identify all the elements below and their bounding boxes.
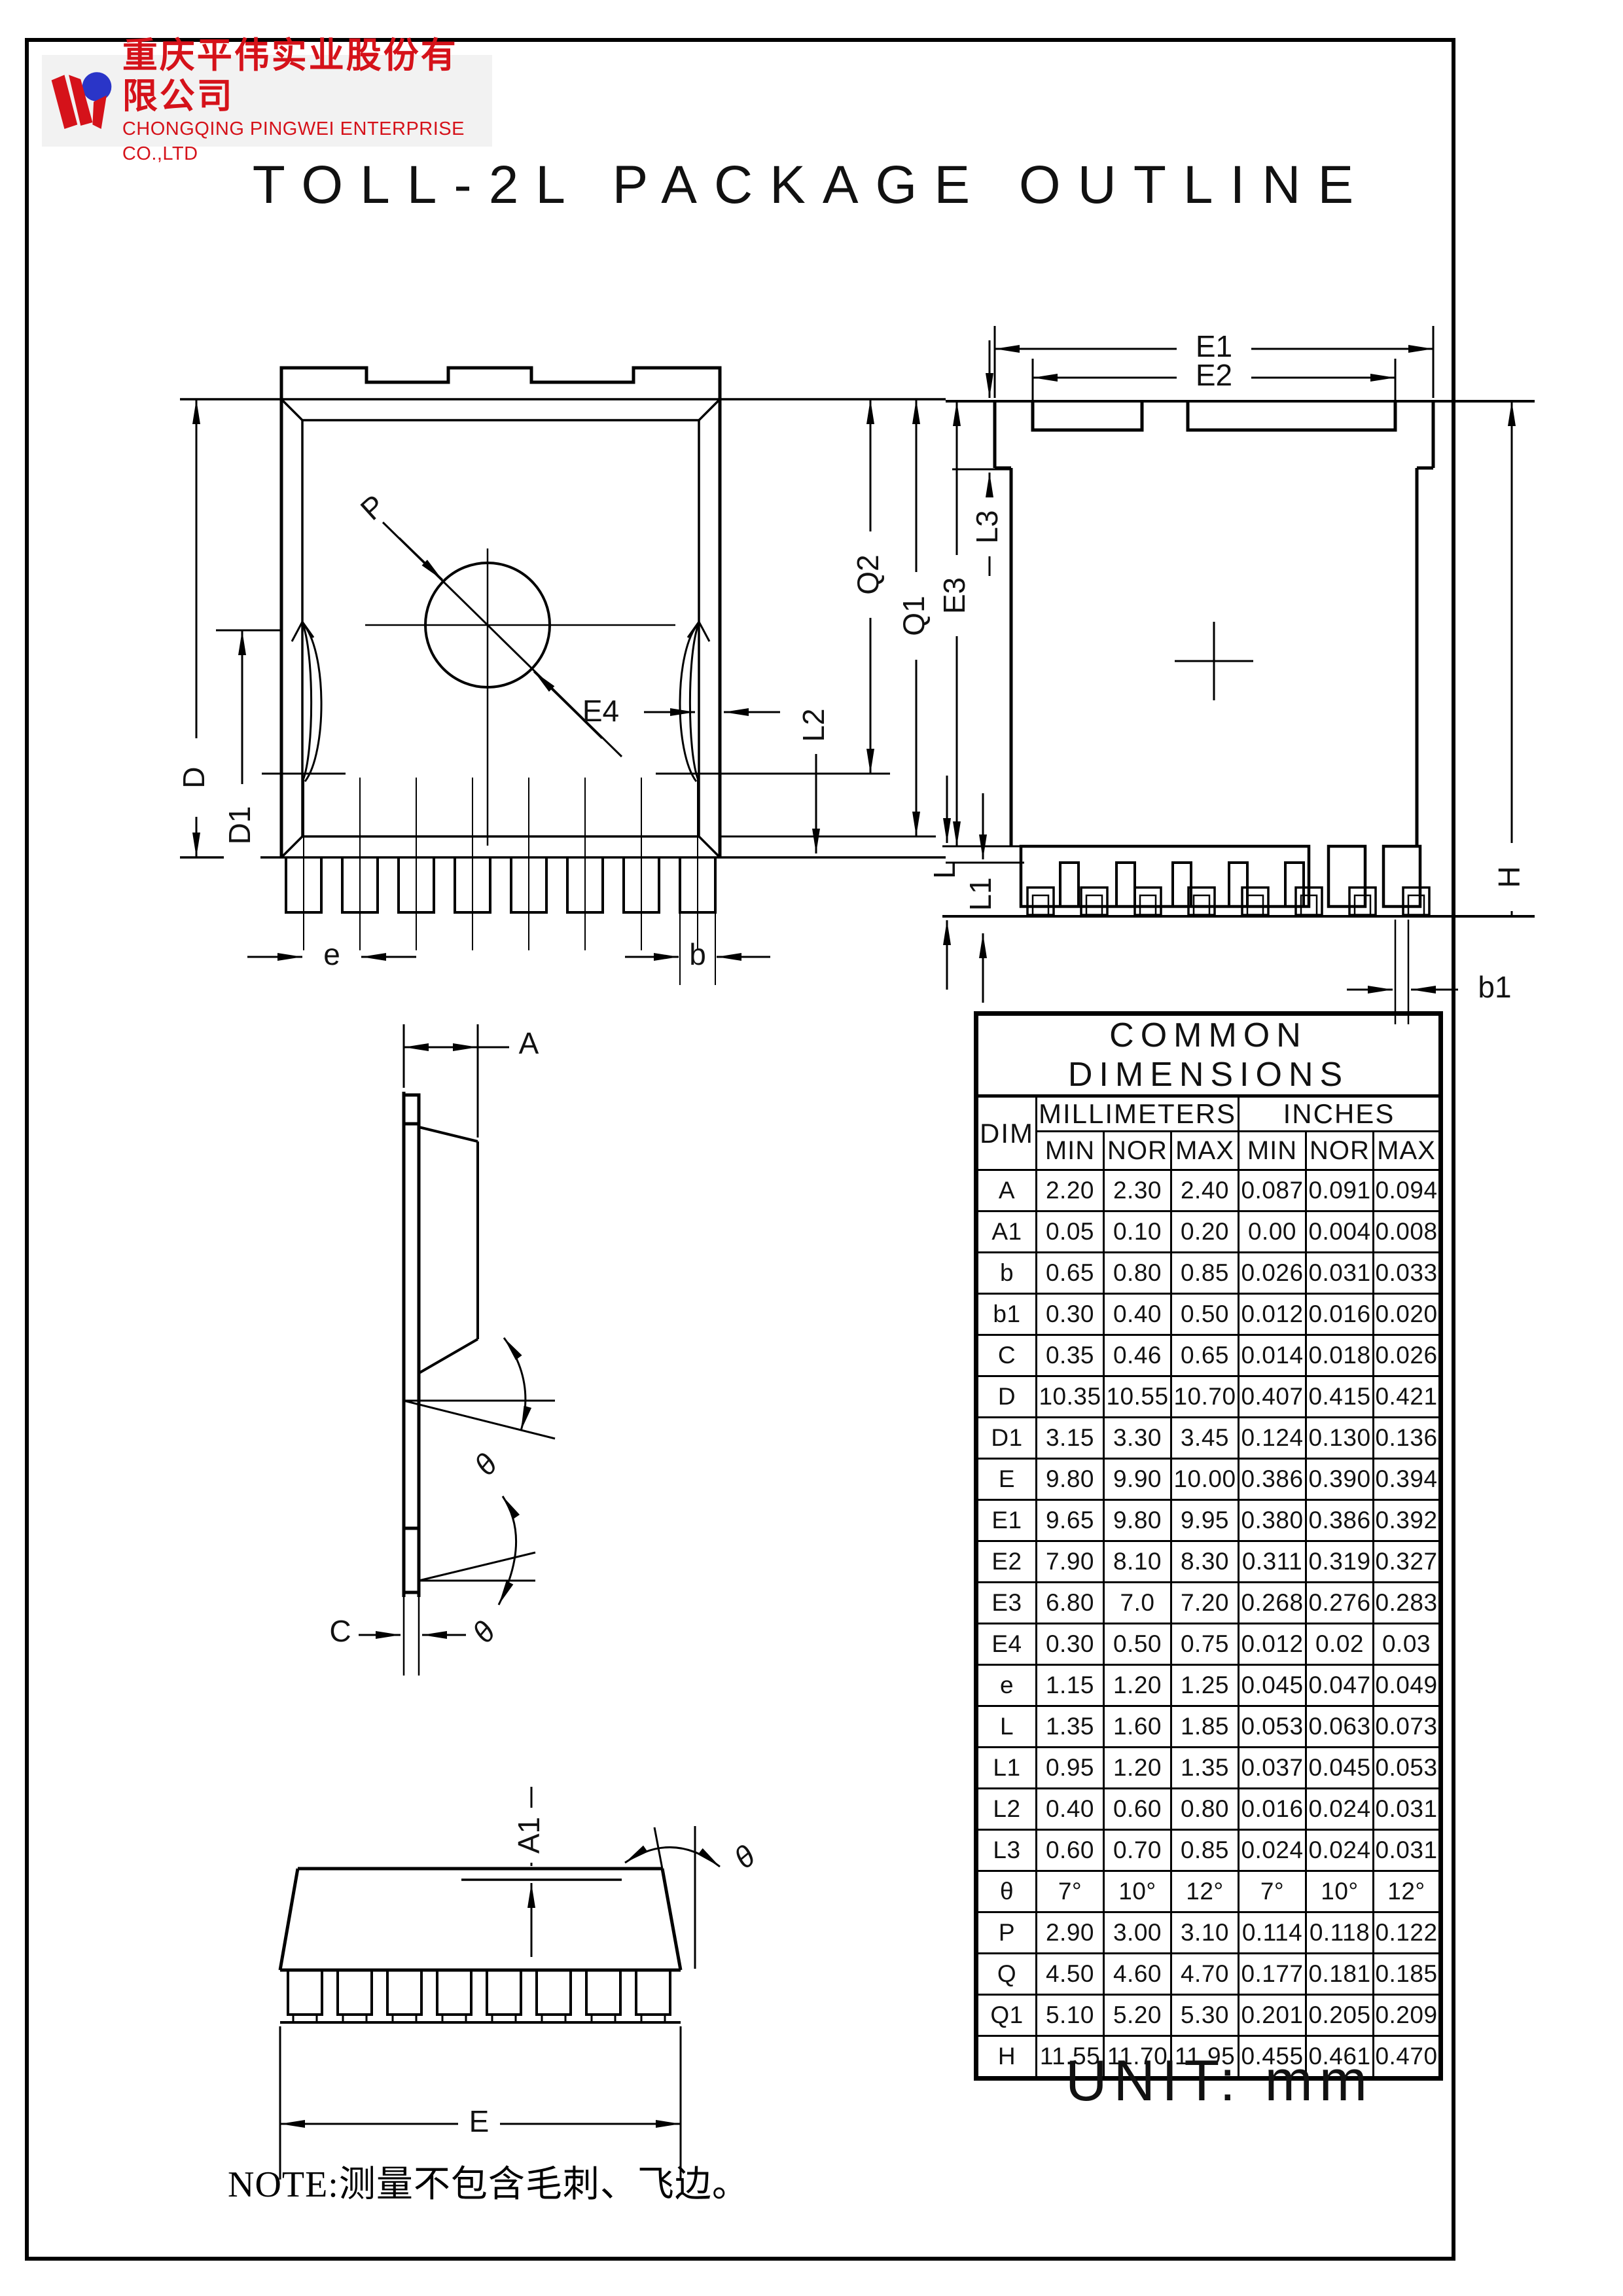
dim-label-p: P <box>354 488 392 527</box>
dim-value-cell: 0.407 <box>1239 1376 1306 1418</box>
dim-value-cell: 0.016 <box>1306 1294 1374 1335</box>
dim-value-cell: 0.70 <box>1104 1830 1171 1871</box>
dim-value-cell: 10.55 <box>1104 1376 1171 1418</box>
dim-value-cell: 0.008 <box>1374 1211 1441 1253</box>
dim-symbol-cell: H <box>976 2036 1037 2079</box>
dim-value-cell: 0.00 <box>1239 1211 1306 1253</box>
dim-value-cell: 0.124 <box>1239 1418 1306 1459</box>
dim-label-e2: E2 <box>1196 358 1232 392</box>
center-cross-mark <box>1175 622 1253 700</box>
side-view-drawing: A θ θ C <box>329 1024 555 1676</box>
dim-value-cell: 2.20 <box>1037 1170 1104 1211</box>
dim-value-cell: 0.031 <box>1374 1830 1441 1871</box>
dim-value-cell: 1.85 <box>1171 1706 1239 1748</box>
dim-label-l1: L1 <box>963 877 997 910</box>
dim-value-cell: 0.60 <box>1104 1789 1171 1830</box>
dim-value-cell: 5.10 <box>1037 1995 1104 2036</box>
dim-value-cell: 3.15 <box>1037 1418 1104 1459</box>
dim-value-cell: 7° <box>1037 1871 1104 1912</box>
dim-value-cell: 3.30 <box>1104 1418 1171 1459</box>
dim-symbol-cell: C <box>976 1335 1037 1376</box>
dim-label-l2: L2 <box>796 708 830 742</box>
dim-value-cell: 0.185 <box>1374 1954 1441 1995</box>
dim-label-e3: E3 <box>937 577 971 614</box>
dim-value-cell: 0.35 <box>1037 1335 1104 1376</box>
table-row: P2.903.003.100.1140.1180.122 <box>976 1912 1441 1954</box>
dim-value-cell: 0.012 <box>1239 1294 1306 1335</box>
column-header-min-in: MIN <box>1239 1132 1306 1170</box>
dim-value-cell: 0.268 <box>1239 1583 1306 1624</box>
table-row: θ7°10°12°7°10°12° <box>976 1871 1441 1912</box>
side-view-taper-lines <box>419 1127 478 1373</box>
dim-value-cell: 0.026 <box>1374 1335 1441 1376</box>
dim-symbol-cell: L2 <box>976 1789 1037 1830</box>
dim-value-cell: 0.421 <box>1374 1376 1441 1418</box>
dim-value-cell: 0.60 <box>1037 1830 1104 1871</box>
dim-label-a1: A1 <box>512 1817 546 1854</box>
table-row: L10.951.201.350.0370.0450.053 <box>976 1748 1441 1789</box>
dim-value-cell: 0.392 <box>1374 1500 1441 1541</box>
p-arrow-upper <box>399 538 442 580</box>
dim-symbol-cell: b <box>976 1253 1037 1294</box>
dim-value-cell: 8.30 <box>1171 1541 1239 1583</box>
dim-value-cell: 0.073 <box>1374 1706 1441 1748</box>
dim-value-cell: 0.045 <box>1239 1665 1306 1706</box>
dim-value-cell: 9.90 <box>1104 1459 1171 1500</box>
dim-value-cell: 0.024 <box>1306 1830 1374 1871</box>
dim-value-cell: 1.15 <box>1037 1665 1104 1706</box>
dim-value-cell: 9.65 <box>1037 1500 1104 1541</box>
dim-value-cell: 0.047 <box>1306 1665 1374 1706</box>
top-view-inner-outline <box>180 399 946 857</box>
dim-value-cell: 0.470 <box>1374 2036 1441 2079</box>
dim-value-cell: 0.85 <box>1171 1253 1239 1294</box>
dim-symbol-cell: E <box>976 1459 1037 1500</box>
dim-value-cell: 0.80 <box>1104 1253 1171 1294</box>
dim-value-cell: 0.012 <box>1239 1624 1306 1665</box>
dim-value-cell: 0.049 <box>1374 1665 1441 1706</box>
dim-symbol-cell: A1 <box>976 1211 1037 1253</box>
dim-value-cell: 4.50 <box>1037 1954 1104 1995</box>
dim-value-cell: 7.0 <box>1104 1583 1171 1624</box>
dim-value-cell: 0.46 <box>1104 1335 1171 1376</box>
dim-value-cell: 0.05 <box>1037 1211 1104 1253</box>
group-header-inches: INCHES <box>1239 1096 1441 1132</box>
dim-value-cell: 0.03 <box>1374 1624 1441 1665</box>
dim-value-cell: 7.20 <box>1171 1583 1239 1624</box>
dim-label-b1: b1 <box>1478 970 1511 1004</box>
dim-value-cell: 0.024 <box>1306 1789 1374 1830</box>
front-view-body-outline <box>280 1869 681 1970</box>
table-row: Q4.504.604.700.1770.1810.185 <box>976 1954 1441 1995</box>
common-dimensions-table: COMMON DIMENSIONS DIM MILLIMETERS INCHES… <box>974 1011 1443 2081</box>
dim-value-cell: 0.65 <box>1037 1253 1104 1294</box>
dim-value-cell: 0.018 <box>1306 1335 1374 1376</box>
dim-value-cell: 0.033 <box>1374 1253 1441 1294</box>
dim-label-theta-upper: θ <box>467 1447 504 1482</box>
table-row: b10.300.400.500.0120.0160.020 <box>976 1294 1441 1335</box>
dim-value-cell: 7.90 <box>1037 1541 1104 1583</box>
theta-lower-construction <box>419 1552 535 1581</box>
dim-value-cell: 9.80 <box>1037 1459 1104 1500</box>
dim-symbol-cell: L3 <box>976 1830 1037 1871</box>
dim-value-cell: 1.35 <box>1171 1748 1239 1789</box>
dim-value-cell: 0.319 <box>1306 1541 1374 1583</box>
table-row: E19.659.809.950.3800.3860.392 <box>976 1500 1441 1541</box>
b1-extension-lines <box>1395 920 1408 1024</box>
unit-label: UNIT: mm <box>1065 2047 1374 2114</box>
dim-value-cell: 5.20 <box>1104 1995 1171 2036</box>
table-row: L20.400.600.800.0160.0240.031 <box>976 1789 1441 1830</box>
dim-value-cell: 0.136 <box>1374 1418 1441 1459</box>
top-view-drawing: P D D1 Q2 Q1 E4 L2 <box>177 368 946 985</box>
theta-arc <box>625 1847 720 1867</box>
dim-value-cell: 0.50 <box>1171 1294 1239 1335</box>
table-title: COMMON DIMENSIONS <box>976 1014 1441 1096</box>
group-header-millimeters: MILLIMETERS <box>1037 1096 1239 1132</box>
dim-value-cell: 0.380 <box>1239 1500 1306 1541</box>
dim-value-cell: 10.00 <box>1171 1459 1239 1500</box>
gate-pin-outline <box>1329 846 1365 906</box>
column-header-max-in: MAX <box>1374 1132 1441 1170</box>
table-row: L1.351.601.850.0530.0630.073 <box>976 1706 1441 1748</box>
dim-value-cell: 3.10 <box>1171 1912 1239 1954</box>
dim-value-cell: 0.053 <box>1374 1748 1441 1789</box>
dim-value-cell: 10.35 <box>1037 1376 1104 1418</box>
dim-value-cell: 0.205 <box>1306 1995 1374 2036</box>
table-row: e1.151.201.250.0450.0470.049 <box>976 1665 1441 1706</box>
dim-value-cell: 0.016 <box>1239 1789 1306 1830</box>
table-row: Q15.105.205.300.2010.2050.209 <box>976 1995 1441 2036</box>
dim-value-cell: 0.122 <box>1374 1912 1441 1954</box>
dim-value-cell: 0.177 <box>1239 1954 1306 1995</box>
dim-value-cell: 4.60 <box>1104 1954 1171 1995</box>
dim-symbol-cell: Q1 <box>976 1995 1037 2036</box>
dim-value-cell: 0.415 <box>1306 1376 1374 1418</box>
column-header-dim: DIM <box>976 1096 1037 1170</box>
dim-value-cell: 2.40 <box>1171 1170 1239 1211</box>
dim-label-b: b <box>689 937 706 971</box>
dim-value-cell: 0.114 <box>1239 1912 1306 1954</box>
table-row: D13.153.303.450.1240.1300.136 <box>976 1418 1441 1459</box>
dim-value-cell: 0.65 <box>1171 1335 1239 1376</box>
top-view-body-outline <box>281 368 720 857</box>
dim-value-cell: 0.30 <box>1037 1294 1104 1335</box>
dim-label-d: D <box>177 766 211 788</box>
table-row: D10.3510.5510.700.4070.4150.421 <box>976 1376 1441 1418</box>
dim-value-cell: 0.087 <box>1239 1170 1306 1211</box>
table-row: E40.300.500.750.0120.020.03 <box>976 1624 1441 1665</box>
dim-label-d1: D1 <box>223 806 257 845</box>
dim-label-q1: Q1 <box>897 596 931 636</box>
dim-value-cell: 10° <box>1104 1871 1171 1912</box>
column-header-min-mm: MIN <box>1037 1132 1104 1170</box>
dim-value-cell: 0.201 <box>1239 1995 1306 2036</box>
exposed-pad-outline <box>1021 846 1309 906</box>
table-row: A10.050.100.200.000.0040.008 <box>976 1211 1441 1253</box>
dim-value-cell: 12° <box>1374 1871 1441 1912</box>
dim-value-cell: 0.031 <box>1374 1789 1441 1830</box>
dim-value-cell: 0.02 <box>1306 1624 1374 1665</box>
a-extension-lines <box>404 1024 478 1138</box>
dim-value-cell: 0.386 <box>1239 1459 1306 1500</box>
dim-value-cell: 1.35 <box>1037 1706 1104 1748</box>
dim-label-l: L <box>927 862 961 879</box>
dim-symbol-cell: Q <box>976 1954 1037 1995</box>
bottom-view-drawing: E1 E2 <box>927 326 1535 1024</box>
dim-value-cell: 0.053 <box>1239 1706 1306 1748</box>
dim-value-cell: 0.031 <box>1306 1253 1374 1294</box>
dim-value-cell: 0.026 <box>1239 1253 1306 1294</box>
top-view-leads <box>286 857 715 912</box>
dim-label-e4: E4 <box>582 694 619 728</box>
dim-value-cell: 0.209 <box>1374 1995 1441 2036</box>
front-view-leads <box>288 1970 670 2015</box>
dim-value-cell: 3.45 <box>1171 1418 1239 1459</box>
dim-value-cell: 3.00 <box>1104 1912 1171 1954</box>
dim-value-cell: 0.094 <box>1374 1170 1441 1211</box>
source-pin-outline <box>1383 846 1420 906</box>
side-view-body-outline <box>404 1092 419 1597</box>
dim-value-cell: 0.386 <box>1306 1500 1374 1541</box>
dim-label-theta-lower: θ <box>465 1615 502 1649</box>
dim-value-cell: 0.091 <box>1306 1170 1374 1211</box>
dim-value-cell: 0.95 <box>1037 1748 1104 1789</box>
dim-value-cell: 1.20 <box>1104 1665 1171 1706</box>
column-header-nor-mm: NOR <box>1104 1132 1171 1170</box>
dim-value-cell: 2.30 <box>1104 1170 1171 1211</box>
dim-value-cell: 10° <box>1306 1871 1374 1912</box>
dim-value-cell: 0.40 <box>1037 1789 1104 1830</box>
dim-symbol-cell: D <box>976 1376 1037 1418</box>
c-extension-lines <box>404 1597 419 1676</box>
dim-label-h: H <box>1492 866 1526 888</box>
dim-label-c: C <box>329 1614 351 1648</box>
dim-value-cell: 6.80 <box>1037 1583 1104 1624</box>
dim-value-cell: 8.10 <box>1104 1541 1171 1583</box>
dim-symbol-cell: e <box>976 1665 1037 1706</box>
dim-value-cell: 0.020 <box>1374 1294 1441 1335</box>
dim-value-cell: 0.276 <box>1306 1583 1374 1624</box>
dim-value-cell: 9.95 <box>1171 1500 1239 1541</box>
table-row: E27.908.108.300.3110.3190.327 <box>976 1541 1441 1583</box>
dim-value-cell: 0.50 <box>1104 1624 1171 1665</box>
dim-value-cell: 10.70 <box>1171 1376 1239 1418</box>
dim-symbol-cell: E4 <box>976 1624 1037 1665</box>
dim-value-cell: 1.25 <box>1171 1665 1239 1706</box>
dim-symbol-cell: P <box>976 1912 1037 1954</box>
dim-value-cell: 0.037 <box>1239 1748 1306 1789</box>
theta-upper-construction <box>404 1401 555 1439</box>
dim-value-cell: 9.80 <box>1104 1500 1171 1541</box>
dim-symbol-cell: A <box>976 1170 1037 1211</box>
dim-value-cell: 0.311 <box>1239 1541 1306 1583</box>
dim-label-theta: θ <box>727 1839 762 1875</box>
dim-value-cell: 2.90 <box>1037 1912 1104 1954</box>
dim-symbol-cell: θ <box>976 1871 1037 1912</box>
dim-value-cell: 0.063 <box>1306 1706 1374 1748</box>
dim-value-cell: 0.004 <box>1306 1211 1374 1253</box>
table-row: b0.650.800.850.0260.0310.033 <box>976 1253 1441 1294</box>
dim-value-cell: 0.181 <box>1306 1954 1374 1995</box>
dim-symbol-cell: E1 <box>976 1500 1037 1541</box>
table-row: A2.202.302.400.0870.0910.094 <box>976 1170 1441 1211</box>
dim-value-cell: 12° <box>1171 1871 1239 1912</box>
dim-value-cell: 0.283 <box>1374 1583 1441 1624</box>
table-row: L30.600.700.850.0240.0240.031 <box>976 1830 1441 1871</box>
dim-symbol-cell: L <box>976 1706 1037 1748</box>
dim-label-a: A <box>519 1026 539 1060</box>
dim-value-cell: 0.85 <box>1171 1830 1239 1871</box>
dim-symbol-cell: D1 <box>976 1418 1037 1459</box>
dim-value-cell: 0.130 <box>1306 1418 1374 1459</box>
theta-upper-arc <box>504 1338 526 1431</box>
front-view-drawing: A1 θ E <box>280 1787 762 2179</box>
note-text: NOTE:测量不包含毛刺、飞边。 <box>228 2155 749 2208</box>
dim-label-e: e <box>323 937 340 971</box>
top-view-lead-centerlines <box>304 778 698 950</box>
column-header-max-mm: MAX <box>1171 1132 1239 1170</box>
dim-value-cell: 0.394 <box>1374 1459 1441 1500</box>
theta-lower-arc <box>499 1496 516 1605</box>
dim-symbol-cell: b1 <box>976 1294 1037 1335</box>
dim-value-cell: 0.40 <box>1104 1294 1171 1335</box>
dim-label-e-width: E <box>469 2104 490 2138</box>
dim-value-cell: 1.20 <box>1104 1748 1171 1789</box>
dim-value-cell: 0.118 <box>1306 1912 1374 1954</box>
dim-value-cell: 5.30 <box>1171 1995 1239 2036</box>
dim-symbol-cell: E2 <box>976 1541 1037 1583</box>
dim-label-q2: Q2 <box>851 554 885 594</box>
dim-value-cell: 0.10 <box>1104 1211 1171 1253</box>
dim-value-cell: 0.390 <box>1306 1459 1374 1500</box>
table-row: E36.807.07.200.2680.2760.283 <box>976 1583 1441 1624</box>
table-body: A2.202.302.400.0870.0910.094A10.050.100.… <box>976 1170 1441 2079</box>
column-header-nor-in: NOR <box>1306 1132 1374 1170</box>
dim-value-cell: 0.014 <box>1239 1335 1306 1376</box>
dim-symbol-cell: L1 <box>976 1748 1037 1789</box>
table-row: C0.350.460.650.0140.0180.026 <box>976 1335 1441 1376</box>
dim-value-cell: 0.30 <box>1037 1624 1104 1665</box>
dim-value-cell: 0.045 <box>1306 1748 1374 1789</box>
dim-value-cell: 0.024 <box>1239 1830 1306 1871</box>
dim-value-cell: 0.80 <box>1171 1789 1239 1830</box>
dim-value-cell: 1.60 <box>1104 1706 1171 1748</box>
dim-label-l3: L3 <box>970 510 1004 543</box>
dim-symbol-cell: E3 <box>976 1583 1037 1624</box>
pad-slots <box>1060 863 1304 906</box>
table-row: E9.809.9010.000.3860.3900.394 <box>976 1459 1441 1500</box>
top-view-centerlines <box>365 548 675 846</box>
dim-value-cell: 0.20 <box>1171 1211 1239 1253</box>
dim-value-cell: 4.70 <box>1171 1954 1239 1995</box>
dim-value-cell: 0.75 <box>1171 1624 1239 1665</box>
dim-value-cell: 7° <box>1239 1871 1306 1912</box>
dim-value-cell: 0.327 <box>1374 1541 1441 1583</box>
